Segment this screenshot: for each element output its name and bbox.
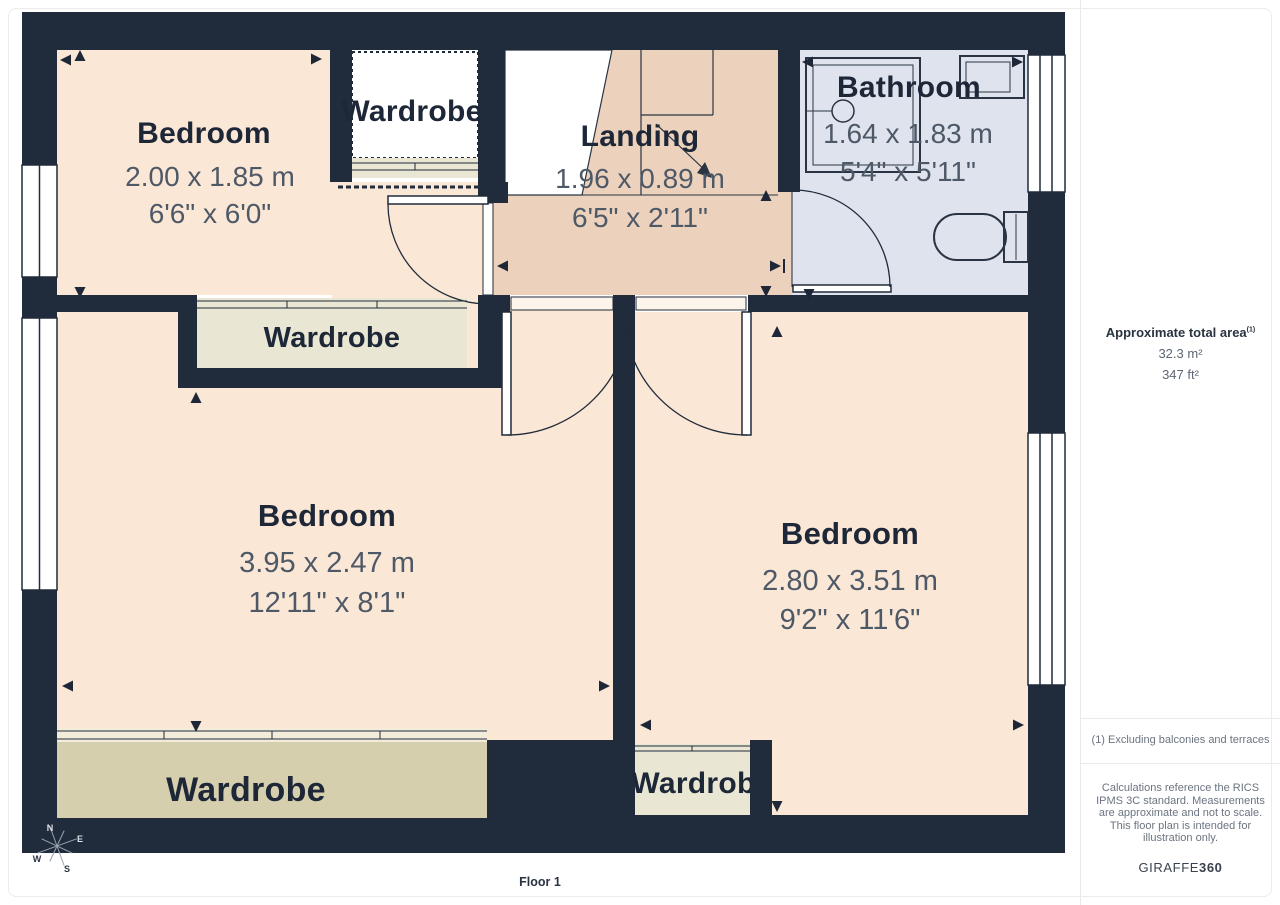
bedroom-top-left-metric: 2.00 x 1.85 m — [125, 161, 295, 192]
bedroom-top-left-name: Bedroom — [137, 117, 271, 150]
landing-metric: 1.96 x 0.89 m — [555, 163, 725, 194]
total-area-title-text: Approximate total area — [1106, 325, 1247, 340]
floor-label: Floor 1 — [0, 875, 1080, 889]
total-area-block: Approximate total area(1) 32.3 m² 347 ft… — [1081, 325, 1280, 382]
sidebar-divider-top — [1081, 718, 1280, 719]
floor-plan-canvas: Bedroom 2.00 x 1.85 m 6'6" x 6'0" Landin… — [0, 0, 1080, 905]
room-bathroom-label: Bathroom 1.64 x 1.83 m 5'4" x 5'11" — [823, 71, 993, 187]
room-bedroom-center-label: Bedroom 3.95 x 2.47 m 12'11" x 8'1" — [239, 498, 415, 619]
wardrobe-bottom-left-label: Wardrobe — [166, 771, 326, 809]
bathroom-name: Bathroom — [837, 71, 981, 104]
room-landing-floor-doorgap-right — [778, 192, 792, 295]
bedroom-right-metric: 2.80 x 3.51 m — [762, 565, 938, 597]
room-bedroom-right-floor — [635, 312, 1028, 815]
window-bedroom-right — [1028, 433, 1065, 685]
room-bathroom-doorgap — [792, 192, 800, 295]
bathroom-imperial: 5'4" x 5'11" — [840, 156, 976, 187]
compass-s: S — [64, 864, 70, 874]
bathroom-metric: 1.64 x 1.83 m — [823, 118, 993, 149]
window-bathroom — [1028, 55, 1065, 192]
floorplan-page: { "plan": { "floor_label": "Floor 1", "r… — [0, 0, 1280, 905]
wardrobe-top-label: Wardrobe — [341, 95, 482, 128]
room-bedroom-top-left-label: Bedroom 2.00 x 1.85 m 6'6" x 6'0" — [125, 117, 295, 229]
brand-prefix: GIRAFFE — [1138, 860, 1199, 875]
info-sidebar: Approximate total area(1) 32.3 m² 347 ft… — [1080, 0, 1280, 905]
wardrobe-middle-label: Wardrobe — [264, 322, 401, 354]
total-area-imperial: 347 ft² — [1081, 367, 1280, 382]
bedroom-right-imperial: 9'2" x 11'6" — [780, 604, 921, 636]
bedroom-right-name: Bedroom — [781, 516, 919, 551]
wardrobe-top-sliding-doors — [352, 158, 478, 178]
total-area-metric: 32.3 m² — [1081, 346, 1280, 361]
sidebar-divider-bottom — [1081, 763, 1280, 764]
wall-post-over-wardrobe — [750, 740, 772, 815]
compass-e: E — [77, 834, 83, 844]
total-area-title: Approximate total area(1) — [1081, 325, 1280, 340]
room-bedroom-right-label: Bedroom 2.80 x 3.51 m 9'2" x 11'6" — [762, 516, 938, 636]
bedroom-top-left-imperial: 6'6" x 6'0" — [149, 198, 271, 229]
brand-logo: GIRAFFE360 — [1081, 860, 1280, 875]
total-area-superscript: (1) — [1247, 327, 1256, 334]
room-landing-floor-doorgap-left — [493, 203, 505, 295]
landing-imperial: 6'5" x 2'11" — [572, 202, 708, 233]
compass-w: W — [33, 854, 42, 864]
area-footnote: (1) Excluding balconies and terraces — [1081, 734, 1280, 746]
window-bedroom-center — [22, 318, 57, 590]
brand-suffix: 360 — [1199, 860, 1223, 875]
bedroom-center-imperial: 12'11" x 8'1" — [249, 587, 406, 619]
bedroom-center-metric: 3.95 x 2.47 m — [239, 547, 415, 579]
landing-name: Landing — [581, 120, 700, 153]
bedroom-center-name: Bedroom — [258, 498, 396, 533]
window-bedroom-top-left — [22, 165, 57, 277]
disclaimer-text: Calculations reference the RICS IPMS 3C … — [1091, 782, 1270, 845]
compass-n: N — [47, 823, 54, 833]
